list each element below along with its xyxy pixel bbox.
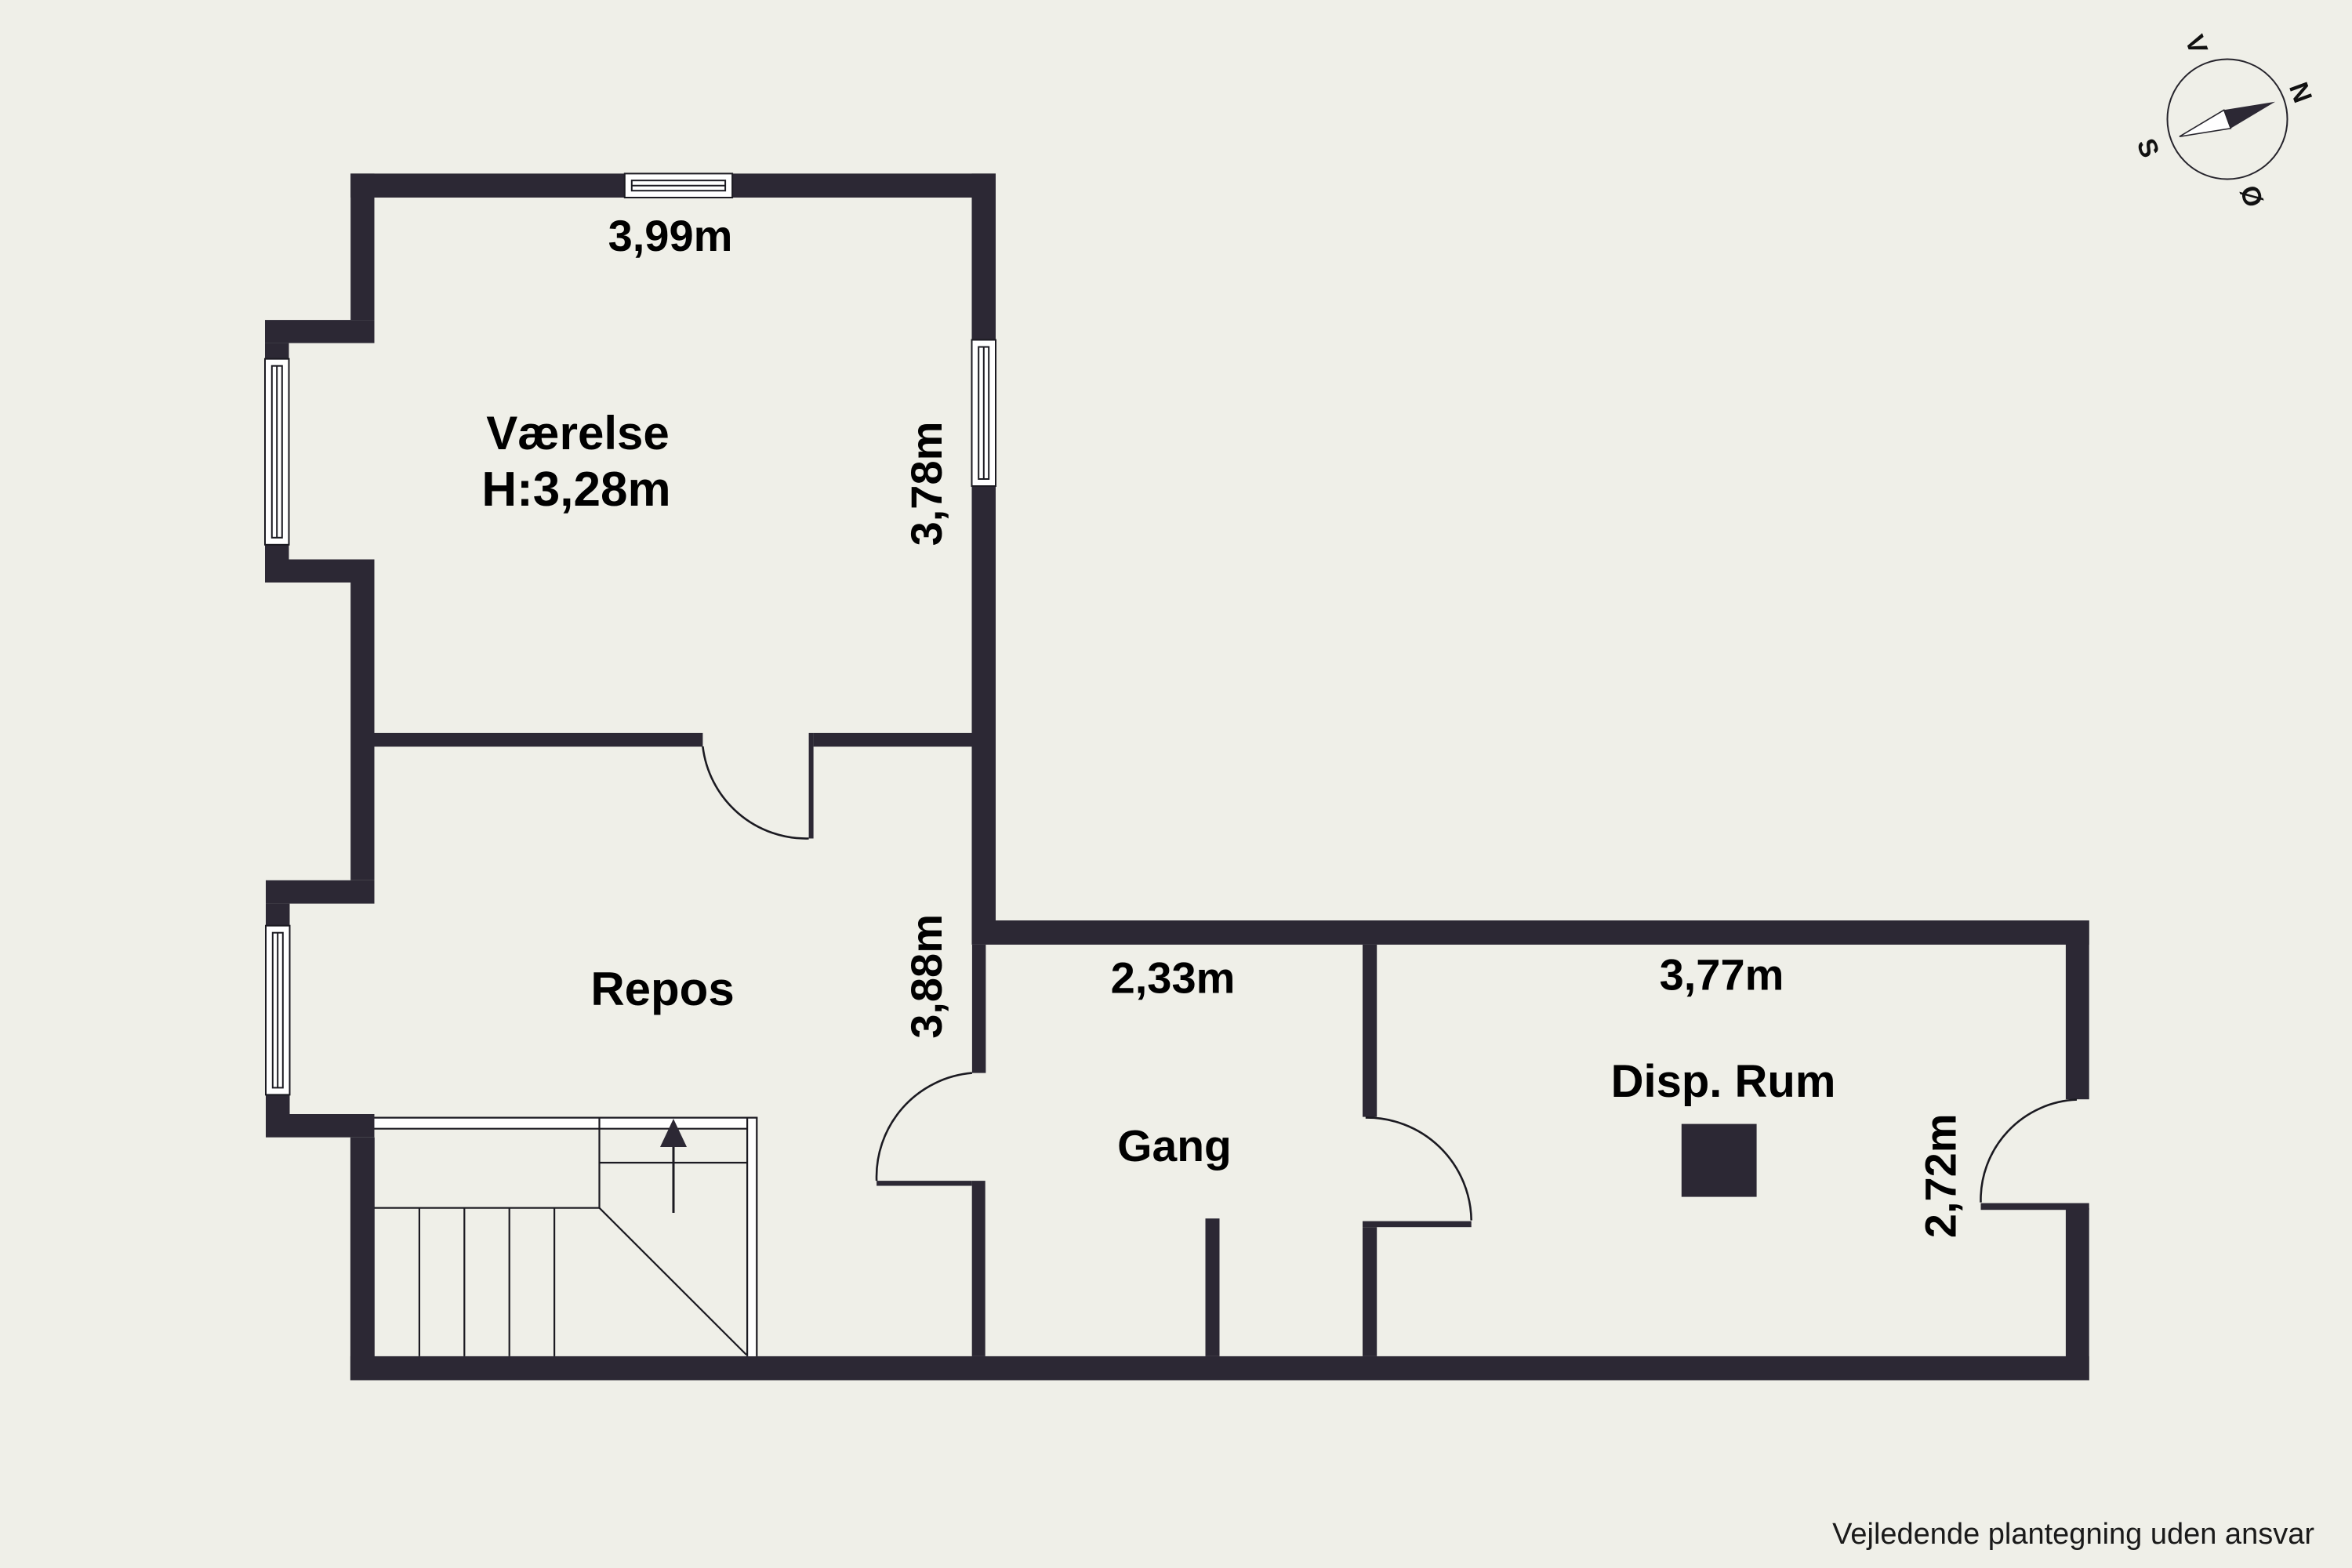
svg-text:3,77m: 3,77m: [1660, 949, 1784, 999]
svg-text:Værelse: Værelse: [486, 407, 670, 459]
svg-text:2,72m: 2,72m: [1916, 1113, 1965, 1238]
svg-text:3,99m: 3,99m: [608, 211, 733, 260]
svg-text:2,33m: 2,33m: [1111, 953, 1236, 1002]
svg-text:H:3,28m: H:3,28m: [481, 463, 670, 517]
svg-text:Vejledende plantegning uden an: Vejledende plantegning uden ansvar: [1832, 1518, 2314, 1551]
svg-text:Gang: Gang: [1117, 1121, 1232, 1171]
svg-text:Repos: Repos: [590, 963, 734, 1015]
svg-text:Disp. Rum: Disp. Rum: [1611, 1056, 1836, 1107]
svg-text:3,88m: 3,88m: [902, 914, 951, 1039]
svg-text:3,78m: 3,78m: [902, 422, 951, 546]
